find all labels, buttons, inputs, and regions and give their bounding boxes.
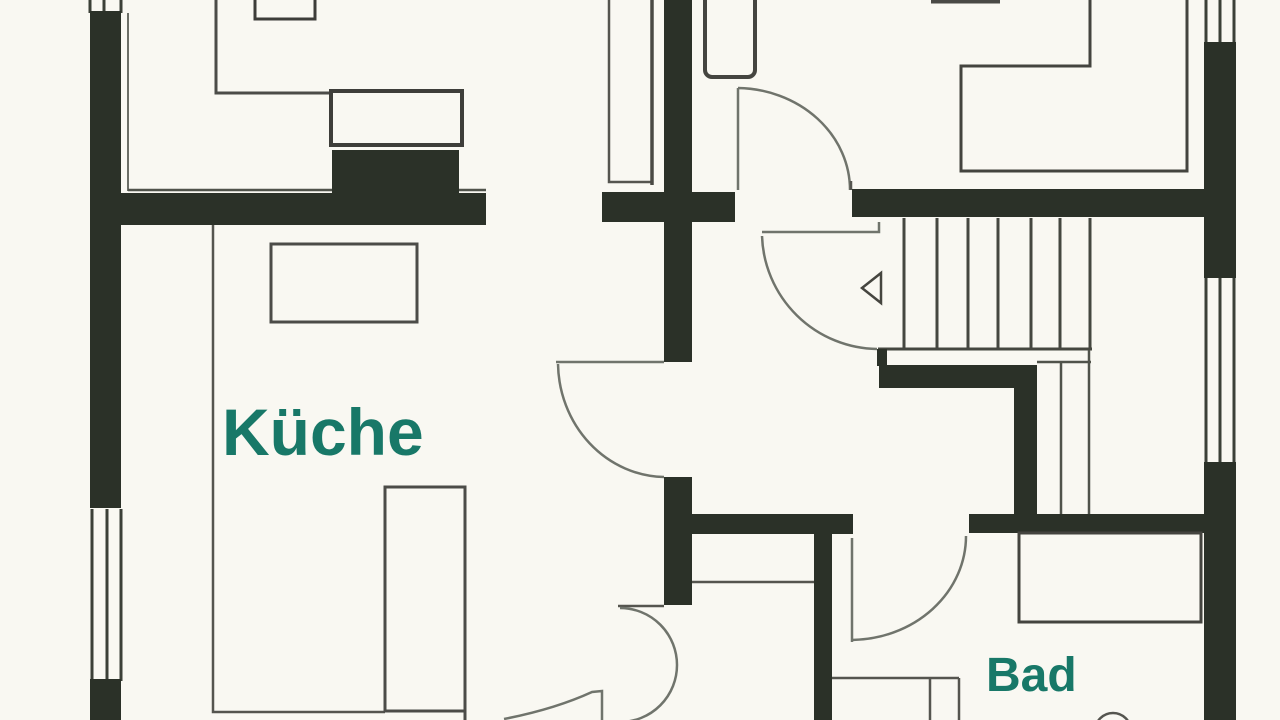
svg-text:Küche: Küche — [222, 395, 424, 469]
svg-text:Bad: Bad — [986, 649, 1077, 702]
